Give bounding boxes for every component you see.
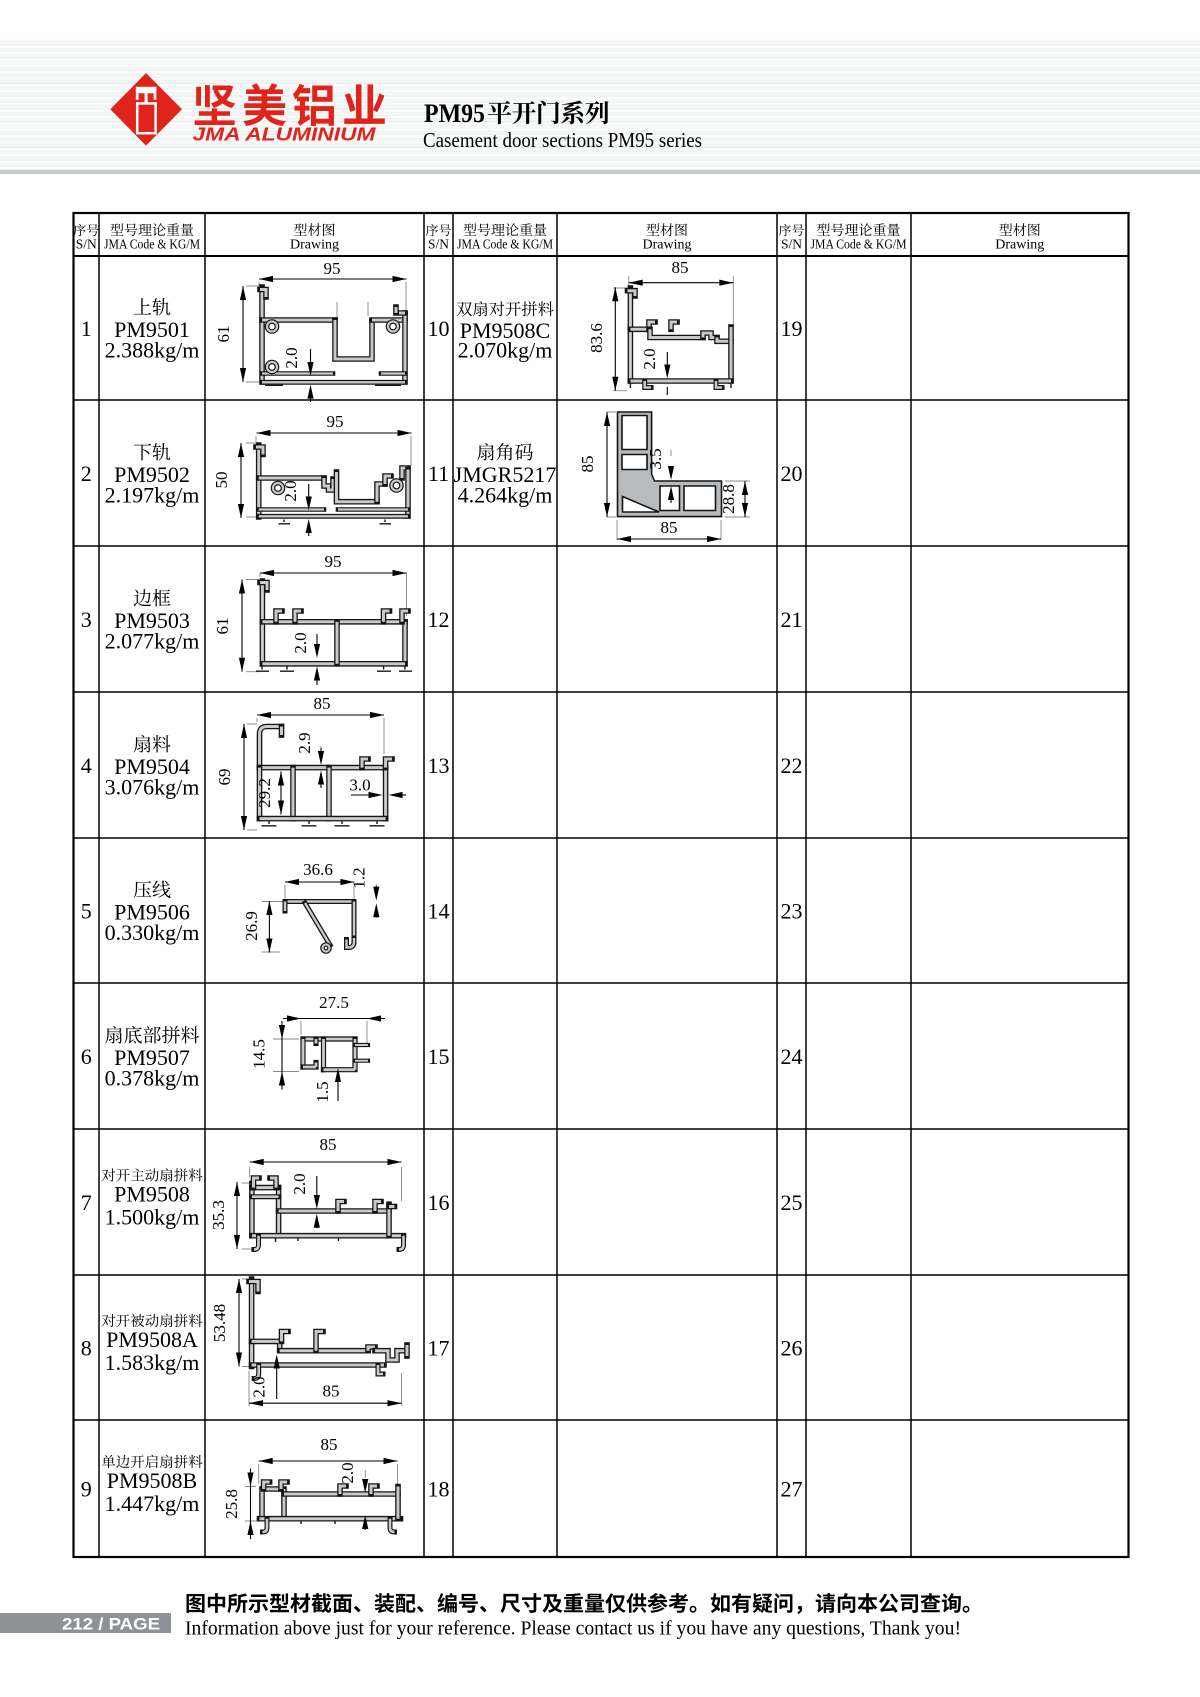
svg-text:50: 50 bbox=[212, 472, 231, 489]
svg-text:Casement door sections PM95 se: Casement door sections PM95 series bbox=[423, 128, 702, 152]
svg-text:Drawing: Drawing bbox=[290, 238, 339, 253]
svg-text:4: 4 bbox=[81, 753, 92, 778]
svg-text:26: 26 bbox=[781, 1336, 803, 1361]
svg-text:5: 5 bbox=[81, 899, 92, 924]
svg-text:2.0: 2.0 bbox=[640, 348, 659, 369]
svg-text:2.0: 2.0 bbox=[281, 480, 300, 501]
svg-text:36.6: 36.6 bbox=[303, 860, 333, 879]
svg-text:JMA Code & KG/M: JMA Code & KG/M bbox=[104, 237, 200, 252]
svg-text:95: 95 bbox=[327, 412, 344, 431]
svg-text:2.0: 2.0 bbox=[250, 1376, 269, 1397]
svg-text:35.3: 35.3 bbox=[209, 1200, 228, 1230]
svg-text:85: 85 bbox=[578, 456, 597, 473]
svg-text:Drawing: Drawing bbox=[995, 238, 1044, 253]
svg-text:85: 85 bbox=[314, 694, 331, 713]
svg-text:2.9: 2.9 bbox=[295, 732, 314, 753]
svg-text:PM95: PM95 bbox=[424, 99, 485, 128]
svg-text:27.5: 27.5 bbox=[319, 993, 349, 1012]
svg-text:61: 61 bbox=[214, 326, 233, 343]
svg-text:2.077kg/m: 2.077kg/m bbox=[105, 629, 200, 654]
svg-text:3: 3 bbox=[81, 607, 92, 632]
svg-text:6: 6 bbox=[81, 1044, 92, 1069]
svg-text:16: 16 bbox=[428, 1190, 450, 1215]
svg-text:2.0: 2.0 bbox=[338, 1462, 357, 1483]
svg-text:15: 15 bbox=[428, 1044, 450, 1069]
svg-text:0.378kg/m: 0.378kg/m bbox=[105, 1066, 200, 1091]
svg-text:PM9508B: PM9508B bbox=[107, 1468, 197, 1493]
svg-text:95: 95 bbox=[324, 259, 341, 278]
svg-text:1.583kg/m: 1.583kg/m bbox=[105, 1350, 200, 1375]
svg-text:10: 10 bbox=[428, 316, 450, 341]
svg-text:2.0: 2.0 bbox=[282, 347, 301, 368]
svg-text:20: 20 bbox=[781, 461, 803, 486]
svg-text:25.8: 25.8 bbox=[222, 1489, 241, 1519]
svg-text:18: 18 bbox=[428, 1477, 450, 1502]
svg-text:4.264kg/m: 4.264kg/m bbox=[458, 483, 553, 508]
svg-text:3.0: 3.0 bbox=[349, 776, 370, 795]
svg-text:12: 12 bbox=[428, 607, 450, 632]
svg-text:83.6: 83.6 bbox=[587, 323, 606, 353]
svg-text:PM9508A: PM9508A bbox=[106, 1327, 198, 1352]
svg-text:S/N: S/N bbox=[76, 237, 97, 252]
svg-text:JMA Code & KG/M: JMA Code & KG/M bbox=[457, 237, 553, 252]
svg-text:8: 8 bbox=[81, 1336, 92, 1361]
svg-text:53.48: 53.48 bbox=[210, 1304, 229, 1342]
svg-text:61: 61 bbox=[213, 618, 232, 635]
svg-text:JMA ALUMINIUM: JMA ALUMINIUM bbox=[193, 125, 377, 145]
svg-text:17: 17 bbox=[428, 1336, 450, 1361]
svg-text:24: 24 bbox=[781, 1044, 803, 1069]
svg-text:13: 13 bbox=[428, 753, 450, 778]
svg-text:2.388kg/m: 2.388kg/m bbox=[105, 338, 200, 363]
svg-text:2: 2 bbox=[81, 461, 92, 486]
svg-text:1: 1 bbox=[81, 316, 92, 341]
svg-text:29.2: 29.2 bbox=[255, 778, 274, 808]
svg-text:14: 14 bbox=[428, 899, 450, 924]
svg-text:22: 22 bbox=[781, 753, 803, 778]
svg-text:2.0: 2.0 bbox=[290, 1173, 309, 1194]
svg-text:212 / PAGE: 212 / PAGE bbox=[62, 1615, 160, 1634]
svg-text:7: 7 bbox=[81, 1190, 92, 1215]
svg-text:Drawing: Drawing bbox=[643, 238, 692, 253]
svg-text:PM9508: PM9508 bbox=[114, 1182, 190, 1207]
svg-text:1.5: 1.5 bbox=[313, 1081, 332, 1102]
svg-text:2.070kg/m: 2.070kg/m bbox=[458, 338, 553, 363]
svg-text:85: 85 bbox=[661, 518, 678, 537]
svg-text:2.0: 2.0 bbox=[291, 632, 310, 653]
svg-text:14.5: 14.5 bbox=[250, 1039, 269, 1069]
svg-text:S/N: S/N bbox=[781, 237, 802, 252]
svg-text:21: 21 bbox=[781, 607, 803, 632]
svg-text:S/N: S/N bbox=[428, 237, 449, 252]
svg-text:19: 19 bbox=[781, 316, 803, 341]
svg-text:Information above just for you: Information above just for your referenc… bbox=[185, 1618, 961, 1640]
svg-text:1.447kg/m: 1.447kg/m bbox=[105, 1491, 200, 1516]
svg-text:26.9: 26.9 bbox=[242, 911, 261, 941]
svg-text:1.2: 1.2 bbox=[350, 867, 369, 888]
svg-text:3.5: 3.5 bbox=[646, 448, 665, 469]
svg-text:27: 27 bbox=[781, 1477, 803, 1502]
svg-text:23: 23 bbox=[781, 899, 803, 924]
svg-text:0.330kg/m: 0.330kg/m bbox=[105, 920, 200, 945]
svg-text:95: 95 bbox=[325, 552, 342, 571]
svg-text:25: 25 bbox=[781, 1190, 803, 1215]
svg-text:11: 11 bbox=[428, 461, 449, 486]
svg-text:85: 85 bbox=[672, 258, 689, 277]
svg-text:2.197kg/m: 2.197kg/m bbox=[105, 483, 200, 508]
svg-text:69: 69 bbox=[215, 769, 234, 786]
svg-text:3.076kg/m: 3.076kg/m bbox=[105, 775, 200, 800]
svg-text:JMA Code & KG/M: JMA Code & KG/M bbox=[811, 237, 907, 252]
svg-text:85: 85 bbox=[323, 1382, 340, 1401]
svg-text:1.500kg/m: 1.500kg/m bbox=[105, 1205, 200, 1230]
svg-text:85: 85 bbox=[321, 1435, 338, 1454]
svg-text:9: 9 bbox=[81, 1477, 92, 1502]
svg-text:85: 85 bbox=[320, 1135, 337, 1154]
